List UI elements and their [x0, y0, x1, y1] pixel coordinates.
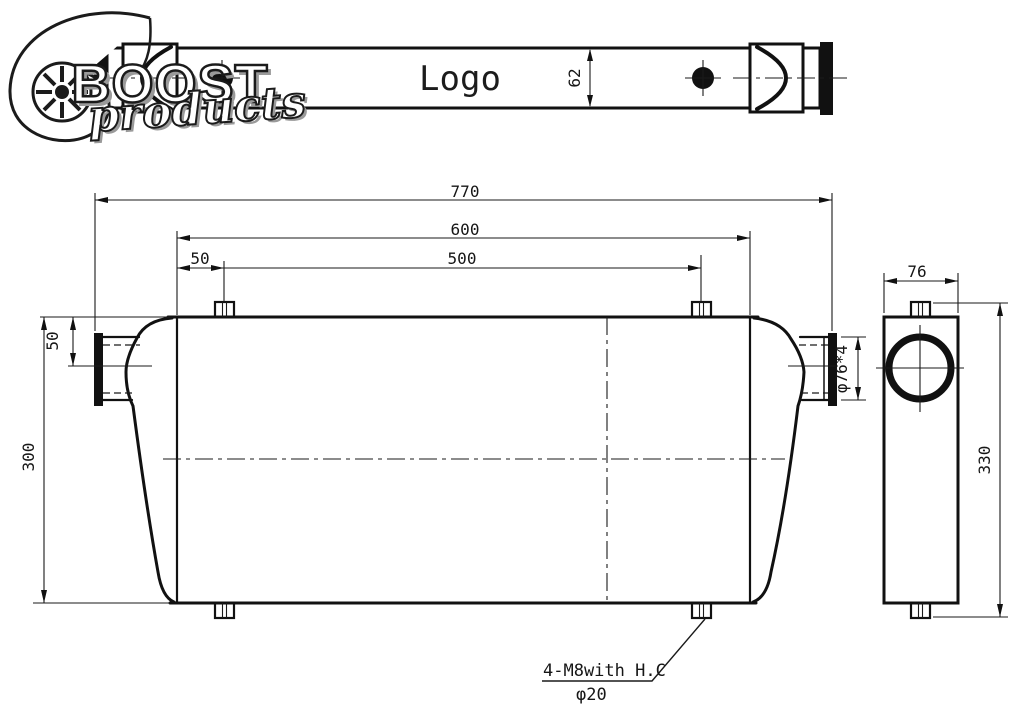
dim-76: 76	[884, 262, 958, 313]
left-end-tank	[126, 318, 174, 602]
dim-port-spec-label: φ76*4	[832, 345, 851, 393]
dim-port-offset-label: 50	[43, 331, 62, 350]
watermark: BOOST BOOST products products	[10, 13, 311, 146]
intercooler-drawing: Logo 62	[0, 0, 1024, 721]
logo-text: Logo	[419, 59, 501, 99]
top-view-right-connector	[733, 42, 852, 115]
bracket-note-line1: 4-M8with H.C	[543, 661, 666, 681]
side-view: 76 330	[876, 262, 1008, 618]
dim-50-label: 50	[190, 249, 209, 268]
mount-hole-right	[685, 60, 721, 96]
dim-port-spec: φ76*4	[832, 337, 866, 400]
side-port-crosshair	[876, 325, 964, 412]
bracket-note-line2: φ20	[576, 685, 607, 705]
dim-50-500: 50 500	[177, 249, 701, 302]
dim-500-label: 500	[448, 249, 477, 268]
technical-drawing-sheet: Logo 62	[0, 0, 1024, 721]
right-end-tank	[753, 318, 804, 602]
front-left-port	[68, 333, 152, 406]
front-view: 770 600 50 500 300	[19, 182, 866, 705]
bracket-note: 4-M8with H.C φ20	[542, 619, 705, 705]
dim-62: 62	[565, 49, 593, 107]
dim-330-label: 330	[975, 446, 994, 475]
dim-62-label: 62	[565, 68, 584, 87]
dim-600-label: 600	[451, 220, 480, 239]
dim-76-label: 76	[907, 262, 926, 281]
dim-300-label: 300	[19, 443, 38, 472]
dim-port-offset-50: 50	[43, 317, 76, 366]
front-brackets	[215, 302, 711, 618]
dim-770-label: 770	[451, 182, 480, 201]
